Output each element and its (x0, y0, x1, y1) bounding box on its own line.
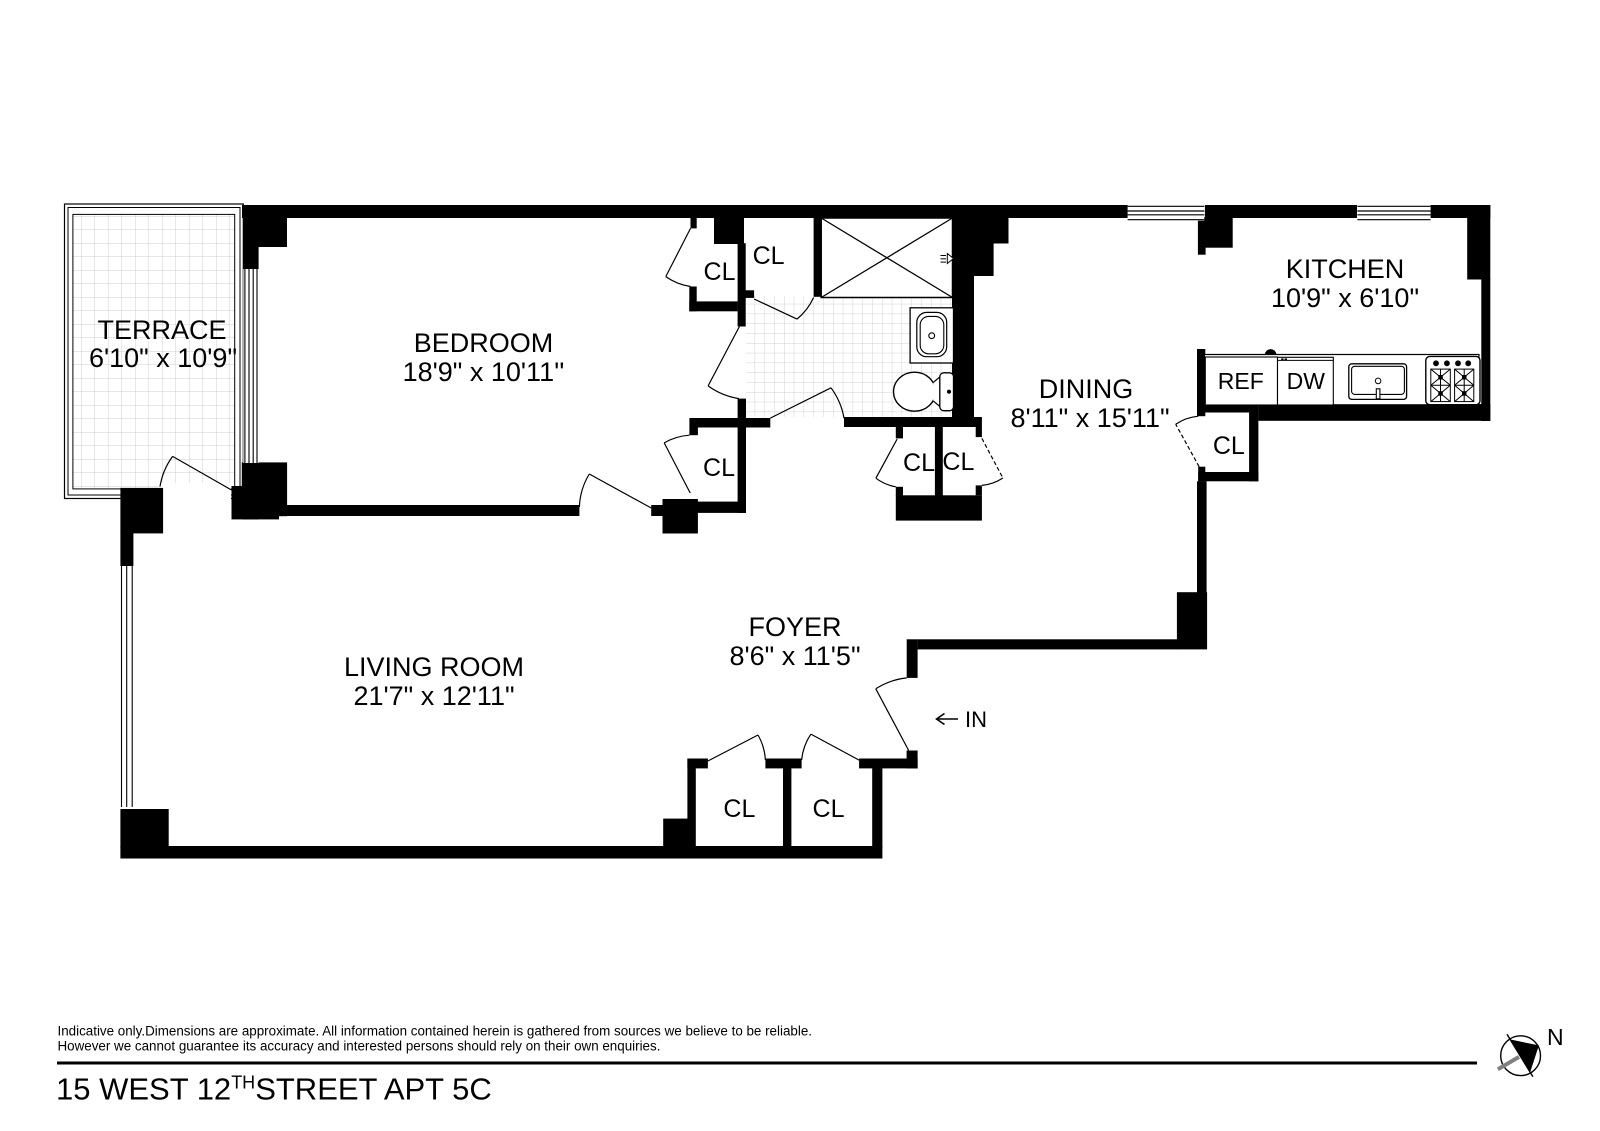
svg-text:CL: CL (1213, 432, 1245, 460)
svg-text:18'9" x 10'11'': 18'9" x 10'11'' (403, 357, 565, 387)
svg-text:8'6" x 11'5": 8'6" x 11'5" (729, 641, 860, 671)
svg-text:CL: CL (723, 795, 755, 823)
svg-text:FOYER: FOYER (748, 612, 841, 642)
svg-text:DINING: DINING (1039, 374, 1134, 404)
svg-text:10'9" x 6'10": 10'9" x 6'10" (1271, 283, 1419, 313)
svg-text:15 WEST 12THSTREET APT 5C: 15 WEST 12THSTREET APT 5C (56, 1072, 492, 1107)
svg-text:BEDROOM: BEDROOM (414, 328, 554, 358)
svg-text:TERRACE: TERRACE (97, 315, 226, 345)
svg-text:IN: IN (965, 707, 987, 732)
svg-text:REF: REF (1218, 368, 1264, 394)
svg-text:LIVING ROOM: LIVING ROOM (344, 652, 524, 682)
svg-text:N: N (1547, 1024, 1564, 1050)
svg-text:CL: CL (753, 242, 785, 270)
svg-text:CL: CL (703, 454, 735, 482)
svg-text:CL: CL (813, 795, 845, 823)
svg-text:6'10" x 10'9": 6'10" x 10'9" (89, 343, 237, 373)
svg-text:Indicative only.Dimensions are: Indicative only.Dimensions are approxima… (58, 1024, 813, 1039)
svg-text:KITCHEN: KITCHEN (1286, 254, 1405, 284)
svg-text:CL: CL (942, 448, 974, 476)
svg-text:CL: CL (903, 449, 935, 477)
svg-text:CL: CL (704, 258, 736, 286)
svg-text:DW: DW (1287, 368, 1326, 394)
svg-text:21'7" x 12'11": 21'7" x 12'11" (353, 681, 514, 711)
svg-text:8'11" x 15'11": 8'11" x 15'11" (1010, 403, 1169, 433)
svg-text:However we cannot guarantee it: However we cannot guarantee its accuracy… (58, 1038, 661, 1053)
